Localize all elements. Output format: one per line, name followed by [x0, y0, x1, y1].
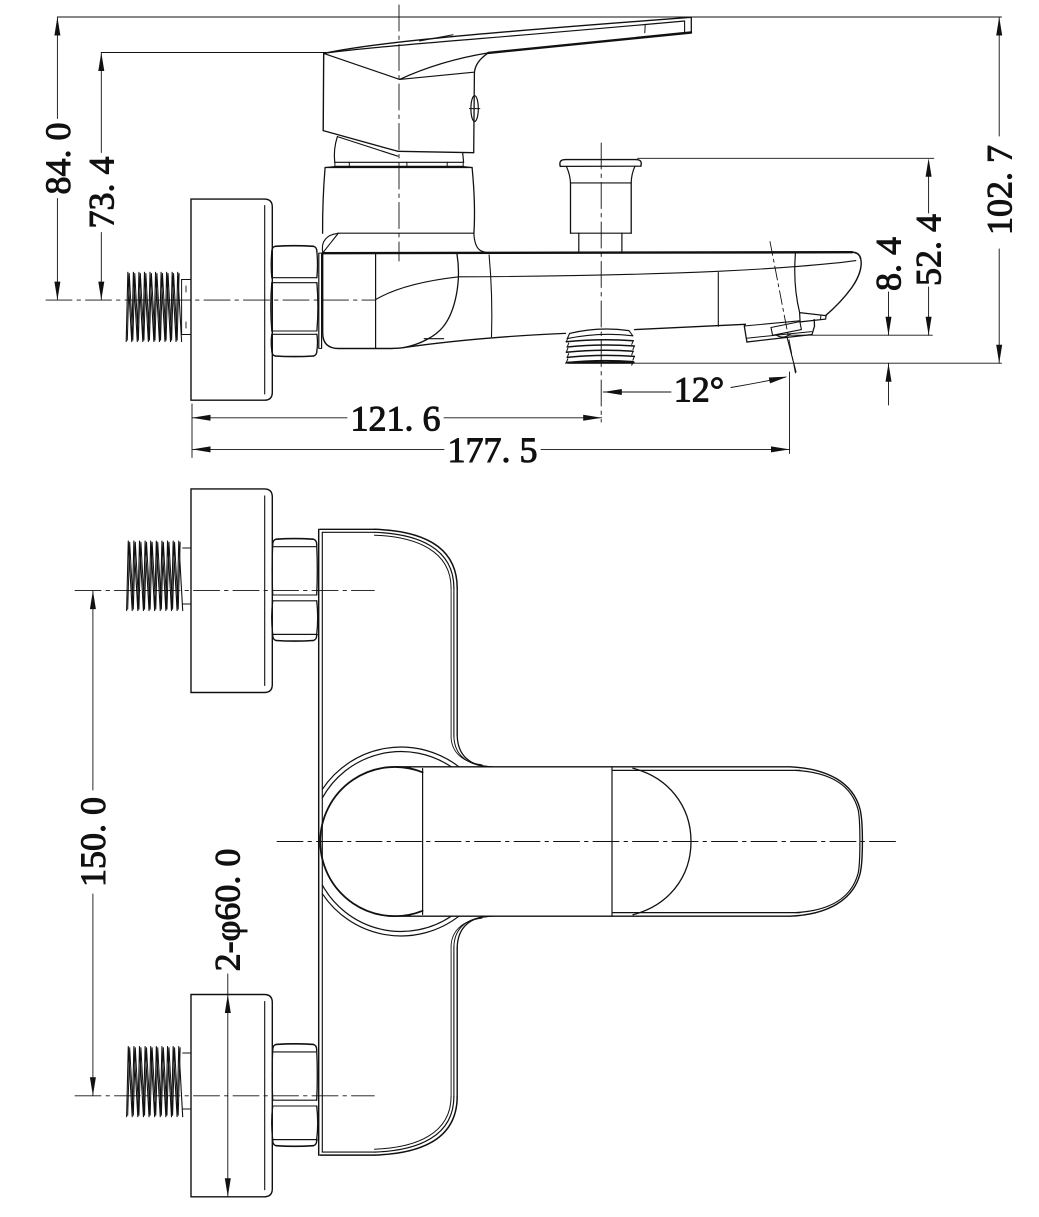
svg-text:150. 0: 150. 0 [73, 797, 113, 887]
svg-text:8. 4: 8. 4 [869, 237, 909, 291]
svg-text:121. 6: 121. 6 [351, 398, 441, 438]
svg-text:73. 4: 73. 4 [81, 157, 121, 229]
svg-text:177. 5: 177. 5 [448, 430, 538, 470]
svg-text:102. 7: 102. 7 [979, 145, 1019, 235]
svg-text:52. 4: 52. 4 [909, 214, 949, 286]
svg-text:84. 0: 84. 0 [38, 123, 78, 195]
svg-text:2-φ60. 0: 2-φ60. 0 [208, 849, 248, 972]
svg-text:12°: 12° [674, 370, 724, 410]
